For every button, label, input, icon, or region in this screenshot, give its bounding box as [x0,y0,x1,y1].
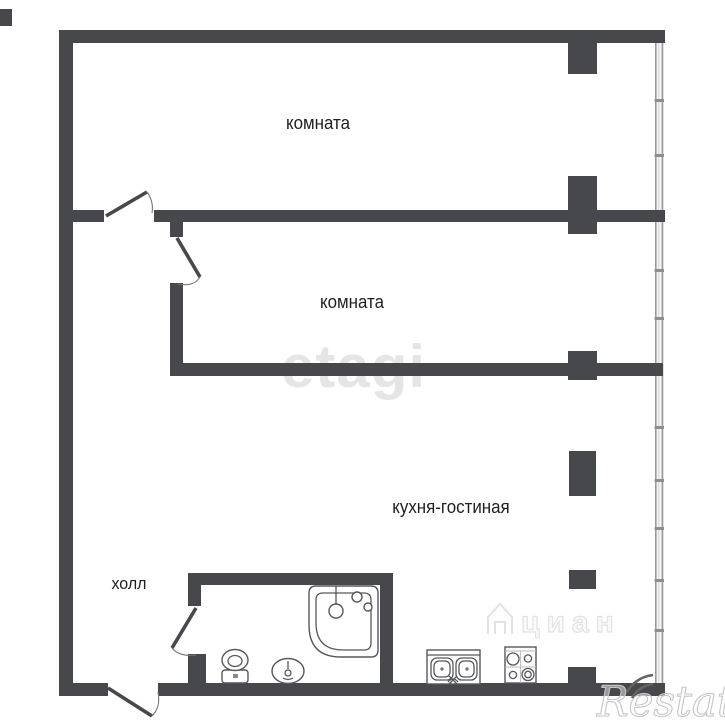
wall-room2-left [170,283,183,376]
washbasin-icon [272,659,304,684]
corner-mark-top-left [0,9,12,26]
wall-outer-bottom-left [59,683,108,696]
pier-kitchen-1 [569,451,596,496]
toilet-icon [222,650,248,684]
door-swing-icon [172,608,196,648]
door-entry [108,688,159,716]
wall-outer-bottom [158,683,665,696]
wall-bath-left-upper [188,573,201,606]
wall-bath-right [380,573,393,683]
pier-top-right [568,43,597,74]
wall-bath-top [188,573,393,585]
pier-kitchen-2 [569,570,596,589]
wall-outer-left [59,30,73,696]
watermark-cian: циан [521,606,621,640]
wall-bath-left-lower [188,654,206,683]
pier-partition-b [568,351,597,380]
watermark-restate: Restate [597,677,725,725]
door-top-room [106,192,152,216]
room-label-hall: холл [111,574,146,594]
stove-icon [505,647,536,683]
room-label-kitchen-living: кухня-гостиная [392,497,509,518]
room-label-middle: комната [320,292,384,313]
kitchen-sink-icon [427,650,480,684]
wall-room2-left-stub [170,222,183,237]
bathtub-icon [309,586,378,657]
pier-partition-a [568,176,597,234]
door-middle-room [177,238,200,285]
wall-partition-a-left [59,210,104,222]
wall-outer-top [59,30,665,43]
room-label-top: комната [286,113,350,134]
door-swing-icon [108,688,152,716]
pier-kitchen-3 [568,667,596,683]
door-swing-icon [177,238,200,277]
door-bathroom [172,608,196,655]
door-swing-icon [106,192,147,216]
floor-plan: etagi [0,0,725,725]
